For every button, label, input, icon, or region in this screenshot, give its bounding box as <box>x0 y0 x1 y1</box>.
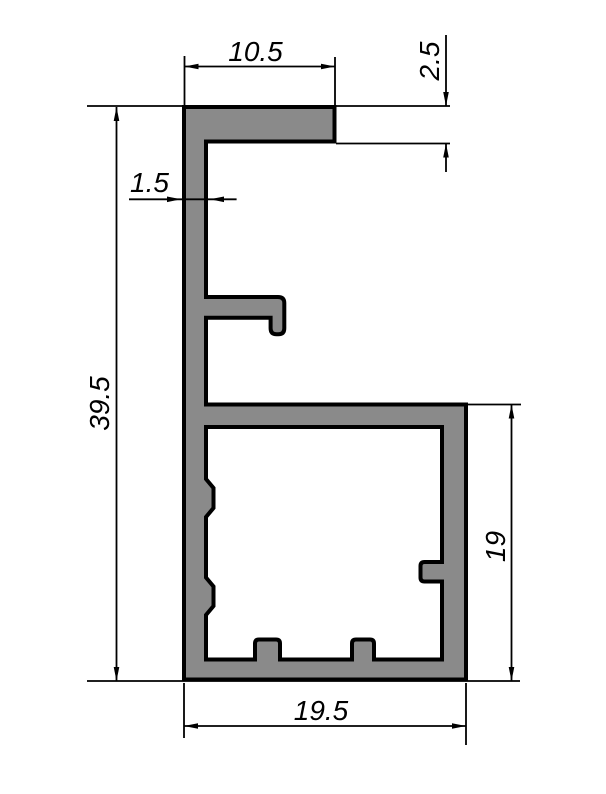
svg-text:2.5: 2.5 <box>414 41 445 81</box>
svg-text:19: 19 <box>480 531 511 562</box>
svg-text:39.5: 39.5 <box>84 376 115 431</box>
svg-text:19.5: 19.5 <box>294 695 349 726</box>
svg-text:1.5: 1.5 <box>130 167 169 198</box>
svg-text:10.5: 10.5 <box>228 36 283 67</box>
